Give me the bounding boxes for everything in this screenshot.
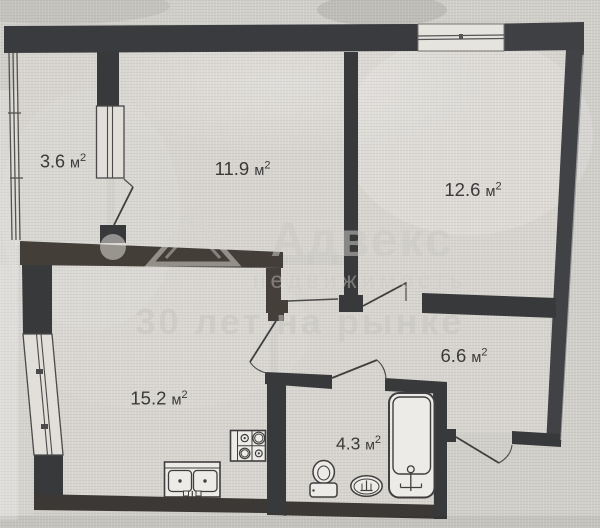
svg-text:Адвекс: Адвекс <box>271 214 454 267</box>
svg-text:30 лет на рынке: 30 лет на рынке <box>136 301 465 342</box>
svg-text:недвижимость: недвижимость <box>253 267 467 293</box>
svg-text:6.6 м2: 6.6 м2 <box>441 345 488 366</box>
svg-text:3.6 м2: 3.6 м2 <box>40 152 86 172</box>
svg-text:4.3 м2: 4.3 м2 <box>336 434 381 454</box>
